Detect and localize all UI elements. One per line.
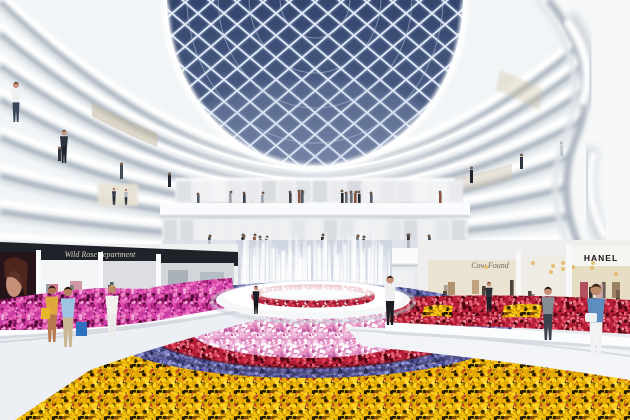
svg-text:Cow Found: Cow Found bbox=[471, 261, 510, 270]
svg-text:HANEL: HANEL bbox=[584, 253, 618, 263]
